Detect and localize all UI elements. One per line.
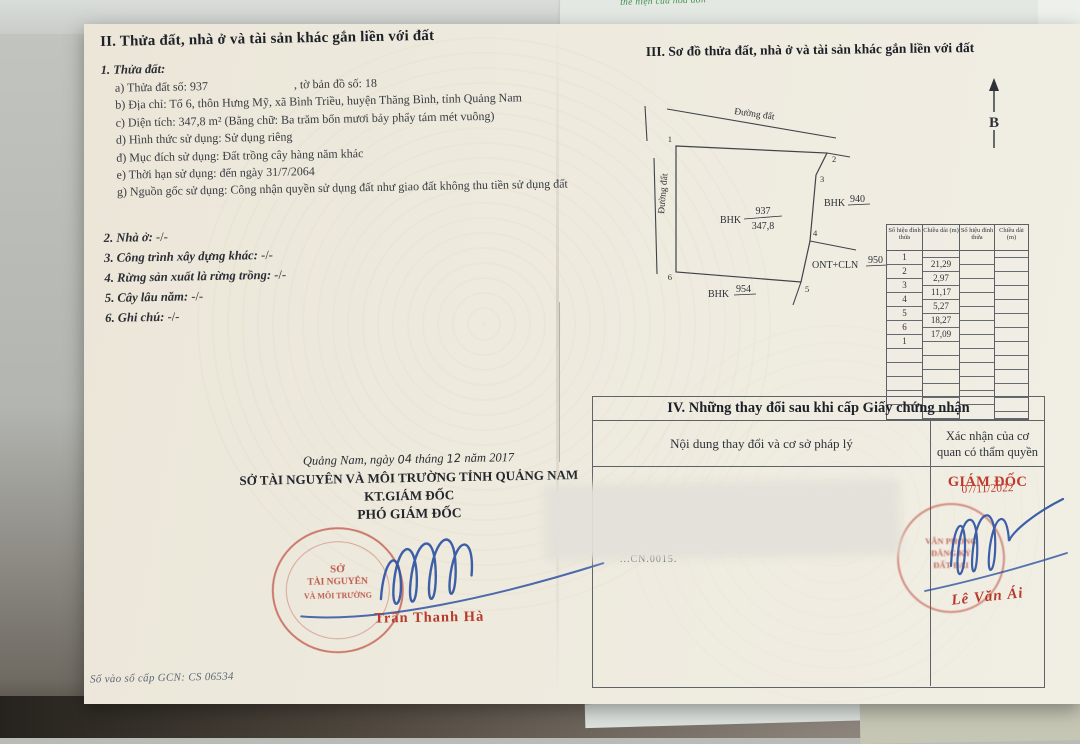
vt-cell-empty xyxy=(960,363,994,377)
date-month-handwritten: 12 xyxy=(446,451,462,466)
vt-cell-empty xyxy=(995,286,1028,300)
vertex-label: 2 xyxy=(832,154,836,164)
vt-cell-empty xyxy=(995,328,1028,342)
item-nha-o-label: 2. Nhà ở: xyxy=(104,230,153,245)
date-day-handwritten: 04 xyxy=(397,451,413,466)
item-nha-o-value: -/- xyxy=(156,230,168,244)
certificate-page: II. Thửa đất, nhà ở và tài sản khác gắn … xyxy=(84,24,1080,704)
vertex-label: 4 xyxy=(813,228,818,238)
vt-cell-empty xyxy=(995,370,1028,384)
vt-col-vertex-1: Số hiệu đỉnh thửa 1 2 3 4 5 6 1 xyxy=(887,225,922,419)
vt-cell: 1 xyxy=(887,335,922,349)
parcel-right-number: 940 xyxy=(850,194,865,205)
item-cong-trinh-label: 3. Công trình xây dựng khác: xyxy=(104,248,258,265)
vt-cell-empty xyxy=(995,356,1028,370)
parcel-bottom-code: BHK xyxy=(708,289,730,300)
item-cay-lau-nam-label: 5. Cây lâu năm: xyxy=(105,289,189,305)
page-crease-line xyxy=(559,302,560,462)
parcel-se-number: 950 xyxy=(868,255,883,266)
vt-cell-empty xyxy=(923,342,959,356)
item-cong-trinh-value: -/- xyxy=(261,248,273,262)
vt-cell: 2,97 xyxy=(923,272,959,286)
vt-cell-empty xyxy=(887,349,922,363)
vt-cell: 18,27 xyxy=(923,314,959,328)
item-ghi-chu-value: -/- xyxy=(167,309,179,323)
vt-cell-empty xyxy=(887,377,922,391)
section-ii: II. Thửa đất, nhà ở và tài sản khác gắn … xyxy=(100,25,585,328)
vt-cell: 5,27 xyxy=(923,300,959,314)
vt-cell-empty xyxy=(960,335,994,349)
authority-confirm-cell: GIÁM ĐỐC 07/11/2022 VĂN PHÒNG ĐĂNG KÝ ĐẤ… xyxy=(931,467,1044,686)
road-label-top: Đường đất xyxy=(734,106,776,123)
vt-cell: 3 xyxy=(887,279,922,293)
vt-cell-empty xyxy=(960,321,994,335)
date-prefix: Quảng Nam, ngày xyxy=(303,452,395,468)
vt-cell-empty xyxy=(995,342,1028,356)
north-label: B xyxy=(989,115,999,131)
vt-cell: 21,29 xyxy=(923,258,959,272)
map-sheet-text: , tờ bản đồ số: 18 xyxy=(294,75,377,94)
section-iv-heading: IV. Những thay đổi sau khi cấp Giấy chứn… xyxy=(593,397,1044,421)
vertex-label: 6 xyxy=(668,272,672,282)
vertex-length-table: Số hiệu đỉnh thửa 1 2 3 4 5 6 1 Chiều dà… xyxy=(886,224,1029,420)
vt-cell-empty xyxy=(995,300,1028,314)
gcn-book-number: Số vào sổ cấp GCN: CS 06534 xyxy=(90,670,234,685)
desk-surface-left xyxy=(0,0,90,738)
parcel-bottom-number: 954 xyxy=(736,284,751,295)
vt-header: Chiều dài (m) xyxy=(923,225,959,251)
vt-cell-empty xyxy=(887,363,922,377)
parcel-main-number: 937 xyxy=(756,206,771,217)
vertex-label: 5 xyxy=(805,284,809,294)
background-paper-text: thể hiện của hóa đơn xyxy=(620,0,706,8)
item-ghi-chu-label: 6. Ghi chú: xyxy=(105,310,164,325)
vt-header: Chiều dài (m) xyxy=(995,225,1028,251)
vt-cell-empty xyxy=(960,251,994,265)
vt-cell-empty xyxy=(960,307,994,321)
item-cay-lau-nam-value: -/- xyxy=(191,289,203,303)
vt-cell: 5 xyxy=(887,307,922,321)
section-iv-header-row: Nội dung thay đổi và cơ sở pháp lý Xác n… xyxy=(593,421,1044,467)
vertex-label: 1 xyxy=(668,134,672,144)
vt-cell-empty xyxy=(960,279,994,293)
parcel-right-code: BHK xyxy=(824,198,846,209)
vt-cell: 2 xyxy=(887,265,922,279)
section-iii-heading: III. Sơ đồ thửa đất, nhà ở và tài sản kh… xyxy=(579,39,1041,61)
redaction-blur-patch xyxy=(543,479,900,561)
item-rung-label: 4. Rừng sản xuất là rừng trồng: xyxy=(104,268,271,285)
vertex-label: 3 xyxy=(820,174,824,184)
parcel-main-area: 347,8 xyxy=(752,221,775,232)
item-rung-value: -/- xyxy=(274,267,286,281)
date-year: năm 2017 xyxy=(464,450,514,465)
background-paper-bottom-right xyxy=(860,700,1080,744)
vt-header: Số hiệu đỉnh thửa xyxy=(960,225,994,251)
north-arrow-icon: B xyxy=(989,78,999,148)
vt-cell-empty xyxy=(960,293,994,307)
vt-header: Số hiệu đỉnh thửa xyxy=(887,225,922,251)
col-change-content: Nội dung thay đổi và cơ sở pháp lý xyxy=(593,421,931,466)
vt-cell: 6 xyxy=(887,321,922,335)
vt-col-vertex-2: Số hiệu đỉnh thửa xyxy=(959,225,994,419)
date-thang: tháng xyxy=(415,451,444,465)
vt-cell: 11,17 xyxy=(923,286,959,300)
vt-cell-empty xyxy=(923,251,959,258)
vt-cell-empty xyxy=(960,265,994,279)
parcel-number-text: a) Thửa đất số: 937 xyxy=(115,78,208,97)
section-ii-heading: II. Thửa đất, nhà ở và tài sản khác gắn … xyxy=(100,25,580,51)
vt-cell-empty xyxy=(923,370,959,384)
vt-cell: 1 xyxy=(887,251,922,265)
vt-cell: 17,09 xyxy=(923,328,959,342)
parcel-boundary xyxy=(676,146,827,282)
vt-cell-empty xyxy=(995,251,1028,258)
col-authority-confirm: Xác nhận của cơ quan có thẩm quyền xyxy=(931,421,1044,466)
road-label-left: Đường đất xyxy=(656,173,671,215)
vt-cell: 4 xyxy=(887,293,922,307)
vt-cell-empty xyxy=(995,272,1028,286)
vt-cell-empty xyxy=(995,314,1028,328)
vt-cell-empty xyxy=(995,258,1028,272)
vt-col-length-1: Chiều dài (m) 21,29 2,97 11,17 5,27 18,2… xyxy=(922,225,959,419)
vt-col-length-2: Chiều dài (m) xyxy=(994,225,1028,419)
vt-cell-empty xyxy=(960,349,994,363)
parcel-main-code: BHK xyxy=(720,215,742,226)
vt-cell-empty xyxy=(960,377,994,391)
photo-of-land-certificate: { "colors": { "stamp_red": "#b63b2c", "i… xyxy=(0,0,1080,738)
background-paper-corner xyxy=(1038,0,1080,26)
parcel-se-code: ONT+CLN xyxy=(812,260,858,271)
vt-cell-empty xyxy=(923,356,959,370)
